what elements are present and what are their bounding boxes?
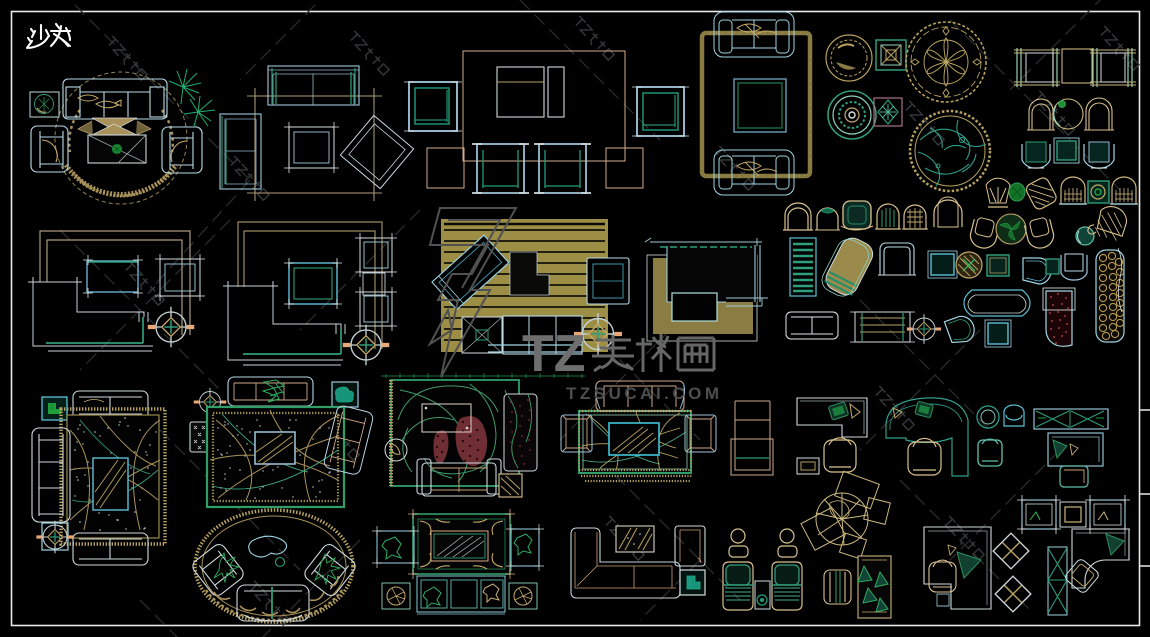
svg-text:TZ: TZ <box>522 325 586 383</box>
svg-text:TZSUCAI.COM: TZSUCAI.COM <box>566 384 723 403</box>
